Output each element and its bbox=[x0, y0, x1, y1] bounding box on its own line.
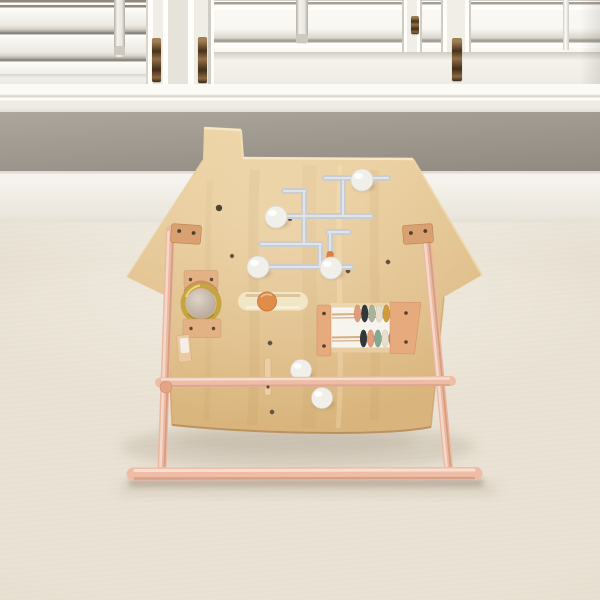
abacus-bottom-rail bbox=[330, 348, 391, 353]
mirror bbox=[186, 289, 216, 319]
activity-board-toy bbox=[0, 0, 600, 600]
abacus-bead bbox=[367, 330, 374, 347]
abacus-bead bbox=[361, 305, 368, 322]
abacus-bead bbox=[383, 305, 390, 322]
abacus-bead bbox=[360, 330, 367, 347]
swing-latch bbox=[176, 334, 191, 362]
board-hole bbox=[216, 205, 222, 211]
screw bbox=[266, 385, 269, 388]
abacus-bead bbox=[376, 305, 383, 322]
crossbar-end-cap bbox=[160, 381, 172, 393]
photo-scene bbox=[0, 0, 600, 600]
abacus-top-rail bbox=[330, 303, 391, 308]
stand-floor-bar bbox=[133, 470, 476, 479]
abacus-bead bbox=[354, 305, 361, 322]
left-bracket bbox=[170, 223, 201, 244]
abacus-bead bbox=[368, 305, 375, 322]
maze-knob bbox=[351, 169, 373, 191]
crossbar-peg bbox=[265, 358, 272, 396]
abacus-bead bbox=[374, 330, 381, 347]
maze-knob bbox=[247, 256, 269, 278]
right-bracket bbox=[402, 223, 433, 244]
slider-slot-toy bbox=[238, 292, 308, 311]
maze-knob bbox=[320, 257, 342, 279]
abacus-bead bbox=[382, 330, 389, 347]
floor-bar-soft-shadow bbox=[118, 482, 498, 496]
maze-knob bbox=[265, 206, 287, 228]
abacus-toy bbox=[317, 302, 421, 356]
